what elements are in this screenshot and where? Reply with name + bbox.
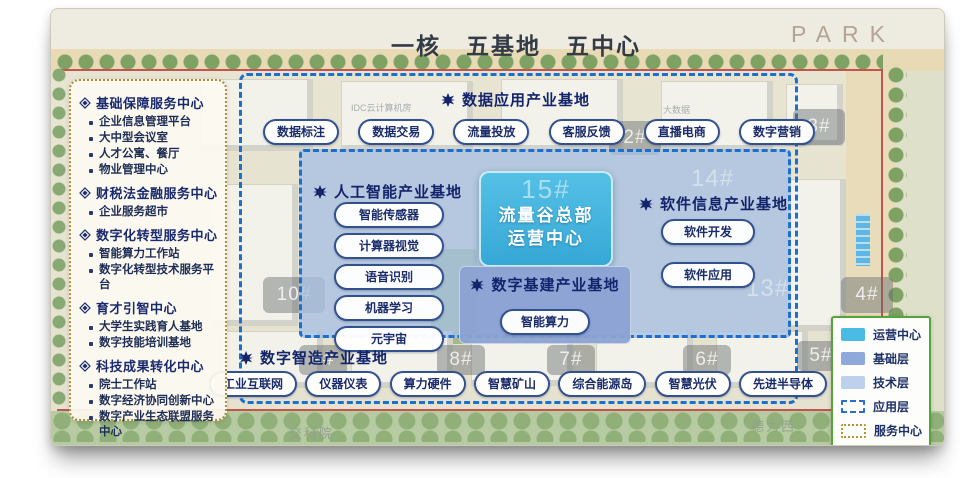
boundary-line-top [57,69,883,71]
header-software-base: 软件信息产业基地 [639,193,788,214]
btn-smart-computing[interactable]: 智能算力 [500,309,590,335]
legend-swatch-service-icon [841,424,866,438]
infrastructure-base-panel: 数字基建产业基地 智能算力 [459,266,631,344]
sidebar-item: 企业信息管理平台 [89,115,217,130]
diamond-icon [79,187,91,199]
diamond-icon [79,360,91,372]
sidebar-item: 智能算力工作站 [89,247,217,262]
building-watermark-14: 14# [691,165,734,193]
service-centers-sidebar: 基础保障服务中心 企业信息管理平台 大中型会议室 人才公寓、餐厅 物业管理中心 … [69,79,227,421]
sidebar-section-title: 数字化转型服务中心 [79,225,217,244]
gear-flower-icon [470,278,484,292]
tree-column-left [52,65,67,407]
bullet-dot-icon [89,400,93,404]
btn-software-app[interactable]: 软件应用 [661,262,755,288]
software-button-column: 软件开发 软件应用 [658,219,758,288]
bullet-dot-icon [89,211,93,215]
legend-swatch-operation-icon [841,328,865,341]
sidebar-item: 物业管理中心 [89,163,217,178]
sidebar-section-title: 科技成果转化中心 [79,356,217,375]
btn-speech-recognition[interactable]: 语音识别 [334,264,444,290]
btn-data-annotation[interactable]: 数据标注 [263,119,339,145]
gear-flower-icon [441,93,455,107]
bullet-dot-icon [89,269,93,273]
bullet-dot-icon [89,416,93,420]
sidebar-item: 大中型会议室 [89,131,217,146]
gear-flower-icon [313,185,327,199]
manufacturing-button-row: 工业互联网 仪器仪表 算力硬件 智慧矿山 综合能源岛 智慧光伏 先进半导体 [209,371,827,397]
sidebar-item: 院士工作站 [89,378,217,393]
sidebar-section-title: 基础保障服务中心 [79,93,217,112]
btn-computer-vision[interactable]: 计算器视觉 [334,233,444,259]
map-label-delixi: 德力西 [751,416,796,435]
btn-software-dev[interactable]: 软件开发 [661,219,755,245]
btn-smart-sensor[interactable]: 智能传感器 [334,202,444,228]
legend-row-tech-layer: 技术层 [841,374,921,391]
legend-row-operation: 运营中心 [841,326,921,343]
bullet-dot-icon [89,169,93,173]
legend-swatch-app-icon [841,400,865,413]
legend-swatch-tech-icon [841,376,865,389]
section-title: 数据应用产业基地 [462,89,590,110]
page-title: 一核 五基地 五中心 [236,27,796,61]
btn-computing-hardware[interactable]: 算力硬件 [390,371,466,397]
diamond-icon [79,302,91,314]
ai-button-column: 智能传感器 计算器视觉 语音识别 机器学习 元宇宙 [327,202,451,352]
legend-swatch-base-icon [841,352,865,365]
site-plan-card: IDC云计算机房 大数据 交科院 德力西 一核 五基地 五中心 PARK 2# … [50,8,945,446]
sidebar-item: 企业服务超市 [89,205,217,220]
header-infra-base: 数字基建产业基地 [460,274,630,295]
section-title: 人工智能产业基地 [334,181,462,202]
section-title: 软件信息产业基地 [660,193,788,214]
btn-data-trading[interactable]: 数据交易 [358,119,434,145]
diamond-icon [79,229,91,241]
data-app-button-row: 数据标注 数据交易 流量投放 客服反馈 直播电商 数字营销 [263,119,815,145]
sidebar-item: 大学生实践育人基地 [89,320,217,335]
core-title-line2: 运营中心 [481,228,611,251]
btn-traffic-placement[interactable]: 流量投放 [453,119,529,145]
map-label-jiaokeyuan: 交科院 [289,423,334,442]
sidebar-item: 人才公寓、餐厅 [89,147,217,162]
btn-digital-marketing[interactable]: 数字营销 [739,119,815,145]
core-title-line1: 流量谷总部 [481,205,611,228]
bullet-dot-icon [89,326,93,330]
sidebar-item: 数字化转型技术服务平台 [89,263,217,293]
btn-smart-mining[interactable]: 智慧矿山 [474,371,550,397]
building-tag-4: 4# [841,277,893,313]
sidebar-section-title: 财税法金融服务中心 [79,183,217,202]
diamond-icon [79,97,91,109]
bullet-dot-icon [89,153,93,157]
header-data-app-base: 数据应用产业基地 [239,89,792,110]
sidebar-section-title: 育才引智中心 [79,298,217,317]
building-watermark-15: 15# [481,174,611,205]
section-title: 数字基建产业基地 [491,274,619,295]
gear-flower-icon [239,351,253,365]
header-ai-base: 人工智能产业基地 [313,181,462,202]
btn-instruments[interactable]: 仪器仪表 [305,371,381,397]
legend: 运营中心 基础层 技术层 应用层 服务中心 [831,316,931,446]
park-wordmark: PARK [791,21,941,48]
bullet-dot-icon [89,137,93,141]
sidebar-item: 数字技能培训基地 [89,336,217,351]
core-operation-center[interactable]: 15# 流量谷总部 运营中心 [479,171,613,267]
btn-advanced-semiconductor[interactable]: 先进半导体 [739,371,827,397]
water-feature [856,214,870,266]
gear-flower-icon [639,197,653,211]
legend-row-base-layer: 基础层 [841,350,921,367]
bullet-dot-icon [89,384,93,388]
bullet-dot-icon [89,342,93,346]
btn-customer-feedback[interactable]: 客服反馈 [549,119,625,145]
section-title: 数字智造产业基地 [260,347,388,368]
bullet-dot-icon [89,121,93,125]
infra-button-column: 智能算力 [460,309,630,335]
btn-energy-island[interactable]: 综合能源岛 [558,371,646,397]
sidebar-item: 数字经济协同创新中心 [89,394,217,409]
btn-smart-pv[interactable]: 智慧光伏 [655,371,731,397]
bullet-dot-icon [89,253,93,257]
sidebar-item: 数字产业生态联盟服务中心 [89,410,217,440]
legend-row-app-layer: 应用层 [841,398,921,415]
legend-row-service-center: 服务中心 [841,422,921,439]
btn-machine-learning[interactable]: 机器学习 [334,295,444,321]
header-manufacturing-base: 数字智造产业基地 [239,347,388,368]
btn-live-ecommerce[interactable]: 直播电商 [644,119,720,145]
